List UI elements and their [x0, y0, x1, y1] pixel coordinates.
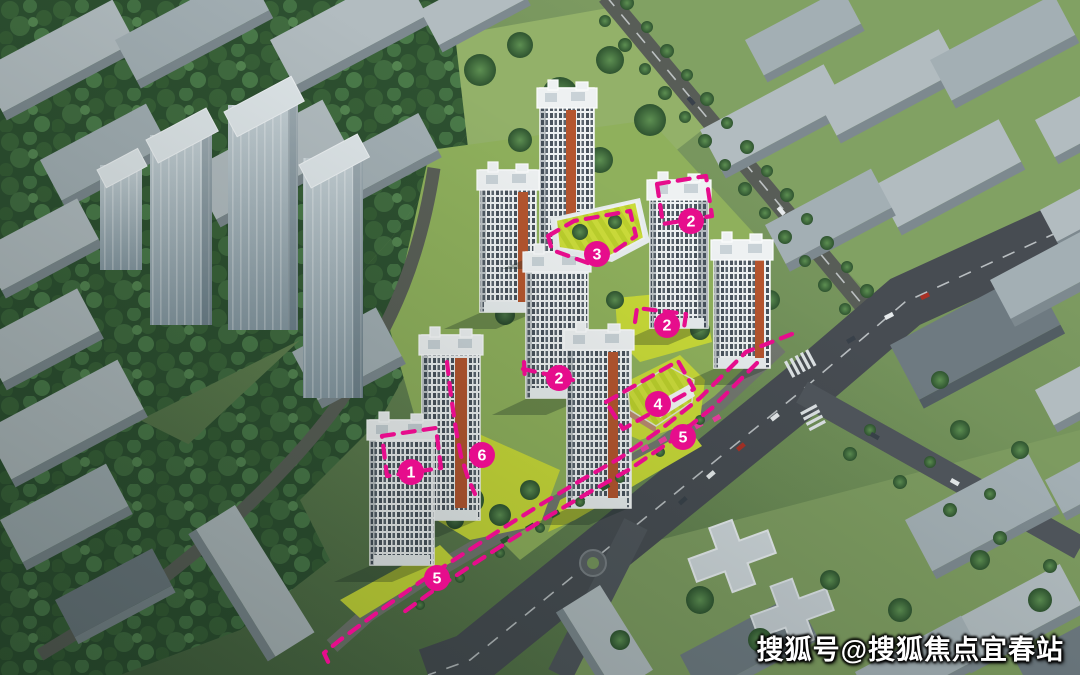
svg-text:6: 6 — [478, 448, 487, 465]
watermark-text: 搜狐号@搜狐焦点宜春站 — [757, 628, 1064, 667]
site-marker-2: 2 — [546, 365, 572, 391]
svg-text:1: 1 — [407, 465, 416, 482]
site-marker-6: 6 — [469, 442, 495, 468]
shading-overlay — [0, 0, 1080, 675]
svg-text:2: 2 — [663, 318, 672, 335]
svg-text:3: 3 — [593, 247, 602, 264]
svg-text:2: 2 — [687, 214, 696, 231]
svg-text:5: 5 — [679, 430, 688, 447]
site-marker-4: 4 — [645, 391, 671, 417]
site-marker-5: 5 — [424, 565, 450, 591]
site-marker-2: 2 — [678, 208, 704, 234]
site-marker-5: 5 — [670, 424, 696, 450]
site-marker-1: 1 — [398, 459, 424, 485]
svg-text:4: 4 — [654, 397, 663, 414]
site-marker-3: 3 — [584, 241, 610, 267]
svg-text:2: 2 — [555, 371, 564, 388]
svg-text:5: 5 — [433, 571, 442, 588]
aerial-rendering: 122234556 搜狐号@搜狐焦点宜春站 — [0, 0, 1080, 675]
aerial-scene: 122234556 — [0, 0, 1080, 675]
site-marker-2: 2 — [654, 312, 680, 338]
